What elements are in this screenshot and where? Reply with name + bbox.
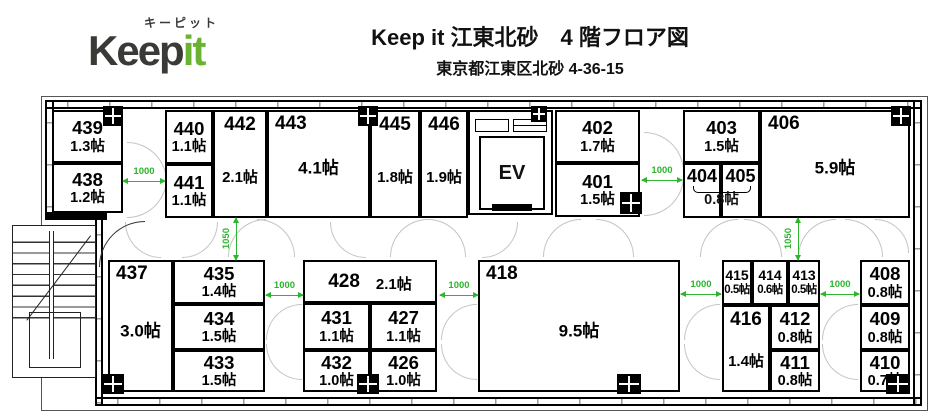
room-size: 0.8帖 — [778, 373, 813, 389]
room-number: 442 — [224, 114, 256, 136]
pillar — [891, 106, 911, 126]
pillar — [617, 374, 641, 394]
dimension-label: 1000 — [133, 167, 154, 177]
room-433: 4331.5帖 — [173, 350, 265, 392]
room-number: 426 — [388, 353, 419, 374]
room-438: 4381.2帖 — [52, 163, 123, 213]
room-size: 1.0帖 — [319, 373, 354, 389]
room-size: 9.5帖 — [559, 316, 600, 341]
room-414: 4140.6帖 — [752, 260, 788, 305]
dimension-1050: 1050 — [784, 218, 799, 260]
room-size: 1.1帖 — [172, 193, 207, 209]
room-number: 409 — [870, 309, 901, 330]
room-number: 445 — [379, 114, 411, 136]
room-431: 4311.1帖 — [303, 303, 370, 350]
room-size: 0.8帖 — [868, 285, 903, 301]
room-number: 418 — [486, 263, 518, 285]
pillar — [886, 374, 910, 394]
room-441: 4411.1帖 — [165, 164, 213, 218]
room-number: 414 — [758, 268, 781, 283]
stair-landing — [29, 312, 81, 368]
elevator-label: EV — [499, 162, 526, 185]
room-434: 4341.5帖 — [173, 304, 265, 350]
room-435: 4351.4帖 — [173, 260, 265, 304]
room-446: 4461.9帖 — [420, 110, 468, 218]
room-428: 4282.1帖 — [303, 260, 437, 303]
room-size: 1.3帖 — [70, 139, 105, 155]
room-number: 411 — [780, 353, 810, 374]
dimension-1000: 1000 — [681, 280, 721, 295]
room-number: 432 — [321, 353, 352, 374]
pillar — [358, 106, 378, 126]
room-412: 4120.8帖 — [770, 305, 820, 350]
dimension-label: 1050 — [784, 228, 794, 249]
dimension-1000: 1000 — [266, 281, 303, 296]
room-number: 435 — [204, 264, 235, 285]
room-size: 1.0帖 — [386, 373, 421, 389]
room-number: 439 — [72, 118, 103, 139]
room-number: 416 — [730, 309, 762, 331]
room-size: 2.1帖 — [376, 273, 412, 294]
room-number: 440 — [174, 119, 205, 140]
dimension-label: 1000 — [274, 281, 295, 291]
room-number: 434 — [204, 309, 235, 330]
dimension-label: 1000 — [829, 280, 850, 290]
room-size: 1.1帖 — [386, 329, 421, 345]
room-size: 1.8帖 — [377, 166, 413, 187]
room-size: 1.1帖 — [319, 329, 354, 345]
room-427: 4271.1帖 — [370, 303, 437, 350]
dimension-label: 1000 — [690, 280, 711, 290]
room-size: 4.1帖 — [298, 154, 339, 179]
room-number: 443 — [275, 113, 307, 135]
room-size: 2.1帖 — [222, 166, 258, 187]
room-size: 0.8帖 — [868, 330, 903, 346]
elevator-shaft: EV — [479, 136, 545, 210]
room-number: 410 — [870, 353, 901, 374]
room-size: 1.4帖 — [728, 350, 764, 371]
dimension-1000: 1000 — [123, 167, 165, 182]
room-number: 446 — [428, 114, 460, 136]
dimension-1000: 1000 — [440, 281, 478, 296]
elevator-machine-icon — [475, 119, 509, 132]
floorplan-page: { "header": { "logo": { "katakana": "キーピ… — [0, 0, 950, 420]
room-number: 438 — [72, 170, 103, 191]
room-number: 433 — [204, 353, 235, 374]
room-442: 4422.1帖 — [213, 110, 267, 218]
room-number: 441 — [174, 173, 205, 194]
dimension-arrow — [236, 218, 237, 260]
wall-bottom — [95, 397, 922, 406]
room-number: 413 — [792, 268, 815, 283]
room-size: 1.5帖 — [580, 192, 615, 208]
room-size: 1.2帖 — [70, 190, 105, 206]
elevator: EV — [468, 110, 553, 215]
room-size: 1.4帖 — [202, 284, 237, 300]
room-size: 1.9帖 — [426, 166, 462, 187]
room-402: 4021.7帖 — [555, 110, 640, 163]
room-415: 4150.5帖 — [722, 260, 752, 305]
room-437: 4373.0帖 — [108, 260, 173, 392]
pillar — [620, 192, 642, 214]
staircase — [12, 225, 96, 378]
dimension-arrow — [266, 295, 303, 296]
dimension-1000: 1000 — [642, 166, 682, 181]
dimension-1000: 1000 — [821, 280, 859, 295]
room-number: 408 — [870, 264, 901, 285]
room-411: 4110.8帖 — [770, 350, 820, 392]
room-number: 412 — [780, 309, 811, 330]
room-406: 4065.9帖 — [760, 110, 910, 218]
wall-top — [45, 100, 922, 109]
room-size: 1.5帖 — [202, 373, 237, 389]
room-size: 5.9帖 — [815, 154, 856, 179]
dimension-label: 1050 — [222, 228, 232, 249]
room-409: 4090.8帖 — [860, 305, 910, 350]
room-number: 431 — [321, 308, 352, 329]
room-size: 0.5帖 — [791, 284, 817, 297]
room-number: 402 — [582, 118, 613, 139]
room-number: 403 — [706, 118, 737, 139]
pillar — [102, 374, 124, 394]
room-size: 3.0帖 — [120, 316, 161, 341]
room-number: 427 — [388, 308, 419, 329]
shared-size-404-405: 0.8帖 — [683, 186, 760, 209]
dimension-arrow — [642, 180, 682, 181]
room-426: 4261.0帖 — [370, 350, 437, 392]
room-443: 4434.1帖 — [267, 110, 370, 218]
room-size: 1.5帖 — [704, 139, 739, 155]
dimension-label: 1000 — [651, 166, 672, 176]
room-440: 4401.1帖 — [165, 110, 213, 164]
pillar — [531, 106, 547, 122]
room-408: 4080.8帖 — [860, 260, 910, 305]
room-number: 401 — [582, 172, 613, 193]
room-size: 1.5帖 — [202, 329, 237, 345]
pillar — [103, 106, 123, 126]
dimension-1050: 1050 — [222, 218, 237, 260]
dimension-arrow — [123, 181, 165, 182]
room-size: 0.5帖 — [724, 284, 750, 297]
room-number: 428 — [328, 271, 360, 293]
dimension-arrow — [798, 218, 799, 260]
wall-right — [913, 100, 922, 406]
pillar — [357, 374, 379, 394]
room-number: 437 — [116, 263, 148, 285]
dimension-arrow — [440, 295, 478, 296]
dimension-arrow — [681, 294, 721, 295]
shared-size-label: 0.8帖 — [704, 193, 739, 209]
room-403: 4031.5帖 — [683, 110, 760, 163]
floor-plan: EV 4391.3帖4381.2帖4401.1帖4411.1帖4422.1帖44… — [0, 0, 950, 420]
room-size: 1.1帖 — [172, 139, 207, 155]
room-445: 4451.8帖 — [370, 110, 420, 218]
room-size: 1.7帖 — [580, 139, 615, 155]
room-413: 4130.5帖 — [788, 260, 820, 305]
room-size: 0.6帖 — [757, 284, 783, 297]
room-number: 415 — [725, 268, 748, 283]
room-number: 406 — [768, 113, 800, 135]
dimension-arrow — [821, 294, 859, 295]
elevator-door-sill — [492, 204, 532, 211]
room-416: 4161.4帖 — [722, 305, 770, 392]
dimension-label: 1000 — [448, 281, 469, 291]
room-418: 4189.5帖 — [478, 260, 680, 392]
room-size: 0.8帖 — [778, 330, 813, 346]
